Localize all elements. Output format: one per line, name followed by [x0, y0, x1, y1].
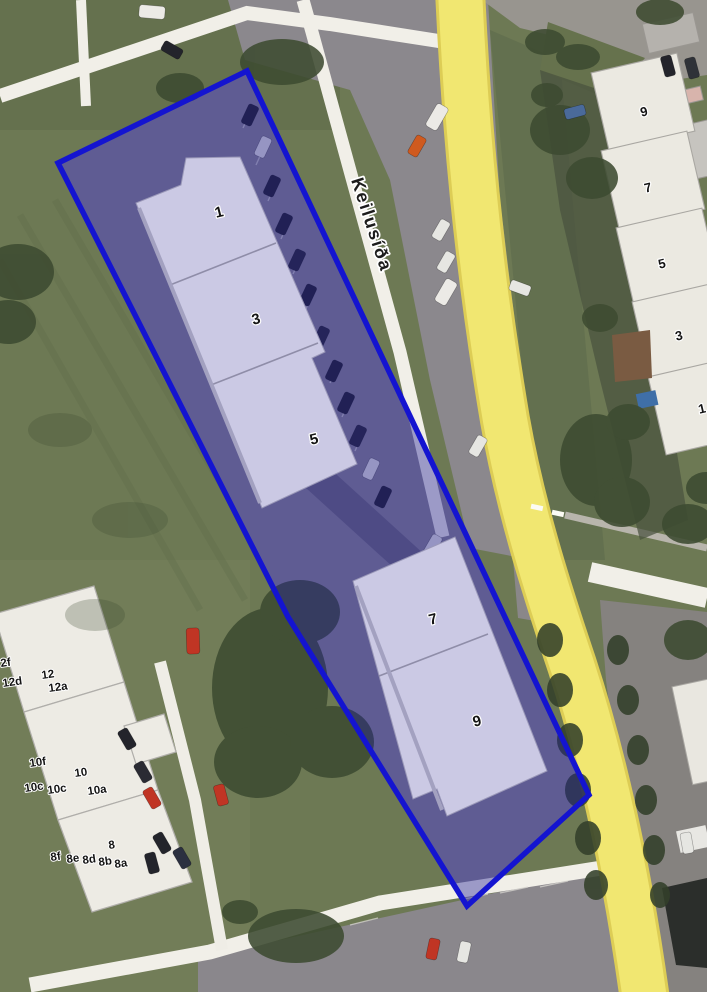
west-label-10f: 10f — [29, 756, 47, 770]
west-label-8e: 8e — [66, 852, 80, 866]
aerial-map-view[interactable]: Keilusíða 1 3 5 7 9 9 7 5 3 1 2f 12d 12 … — [0, 0, 707, 992]
west-label-8b: 8b — [98, 855, 113, 869]
west-label-8a: 8a — [114, 857, 129, 871]
west-label-12: 12 — [41, 668, 55, 682]
west-label-12f: 2f — [0, 657, 12, 670]
west-label-10: 10 — [74, 766, 88, 780]
west-label-8f: 8f — [50, 851, 62, 864]
west-label-8d: 8d — [82, 853, 97, 867]
satellite-map-canvas[interactable]: Keilusíða 1 3 5 7 9 9 7 5 3 1 2f 12d 12 … — [0, 0, 707, 992]
